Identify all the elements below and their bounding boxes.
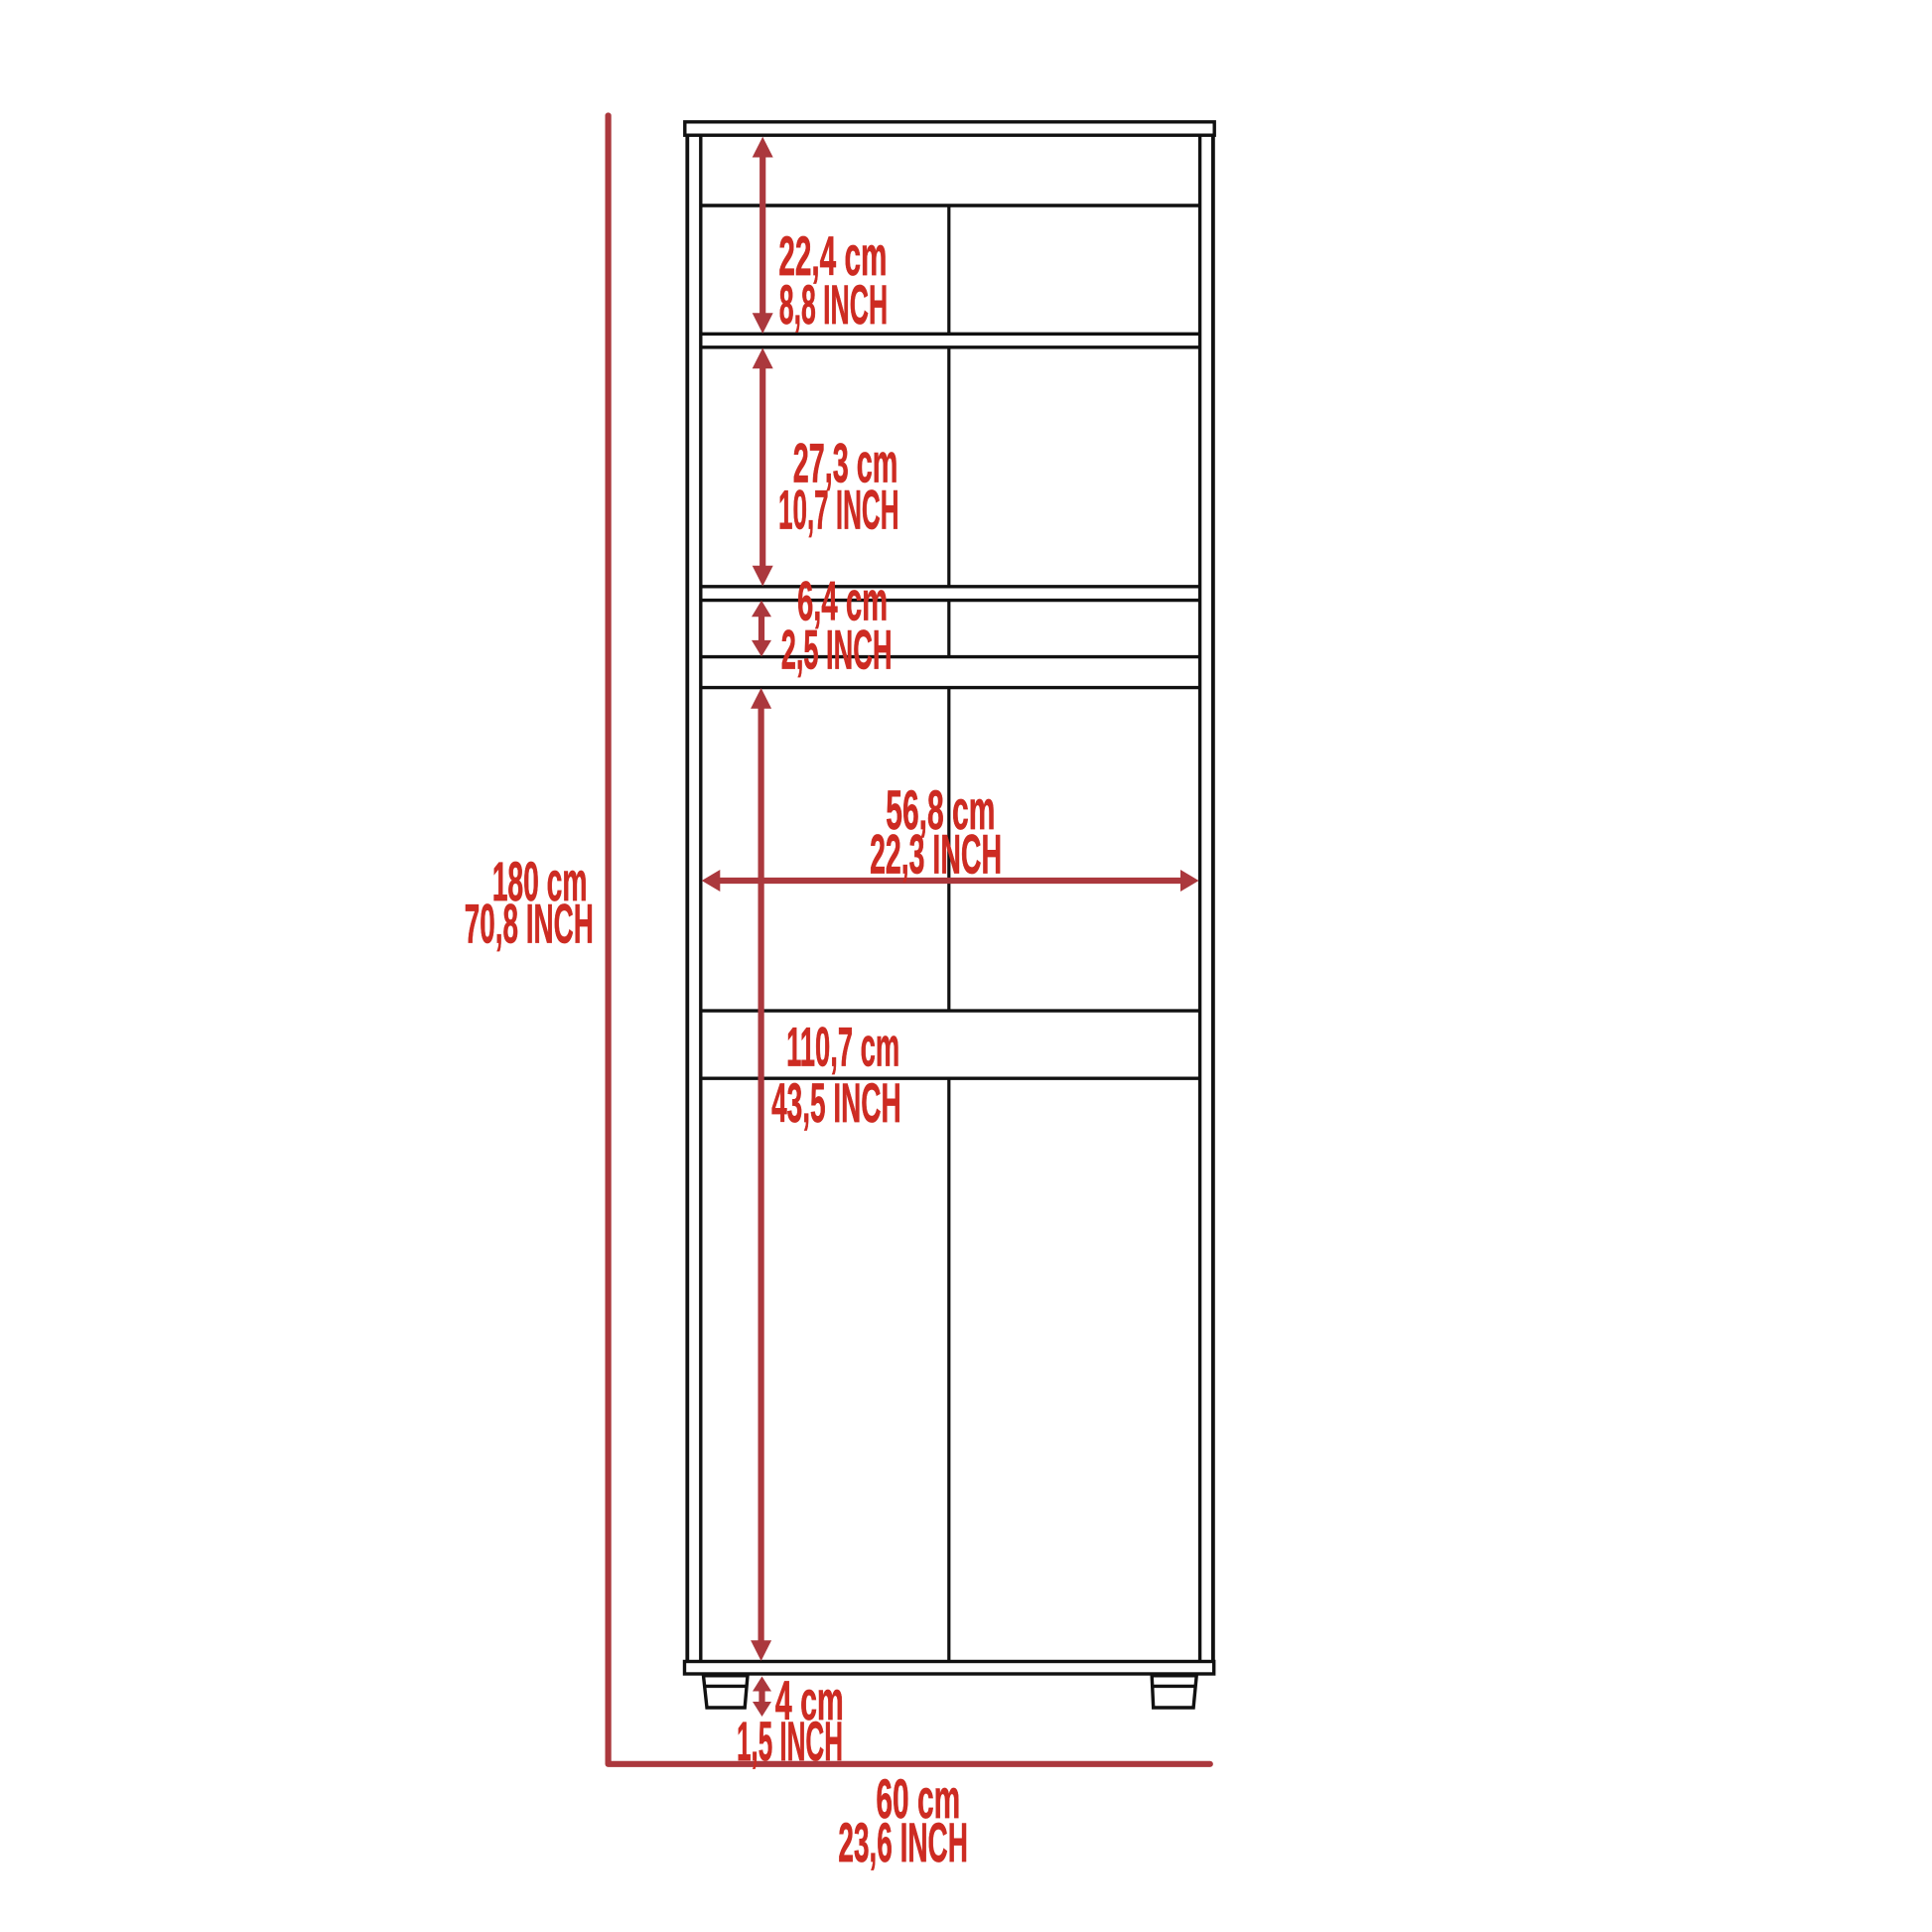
svg-text:23,6 INCH: 23,6 INCH bbox=[838, 1812, 968, 1873]
svg-text:10,7 INCH: 10,7 INCH bbox=[778, 480, 899, 541]
svg-text:70,8 INCH: 70,8 INCH bbox=[465, 894, 594, 955]
svg-text:43,5 INCH: 43,5 INCH bbox=[771, 1072, 901, 1134]
svg-text:22,3 INCH: 22,3 INCH bbox=[870, 823, 1002, 885]
svg-text:110,7 cm: 110,7 cm bbox=[786, 1017, 899, 1078]
svg-text:8,8 INCH: 8,8 INCH bbox=[779, 274, 888, 336]
svg-text:1,5 INCH: 1,5 INCH bbox=[737, 1711, 843, 1772]
svg-text:2,5 INCH: 2,5 INCH bbox=[781, 620, 893, 681]
